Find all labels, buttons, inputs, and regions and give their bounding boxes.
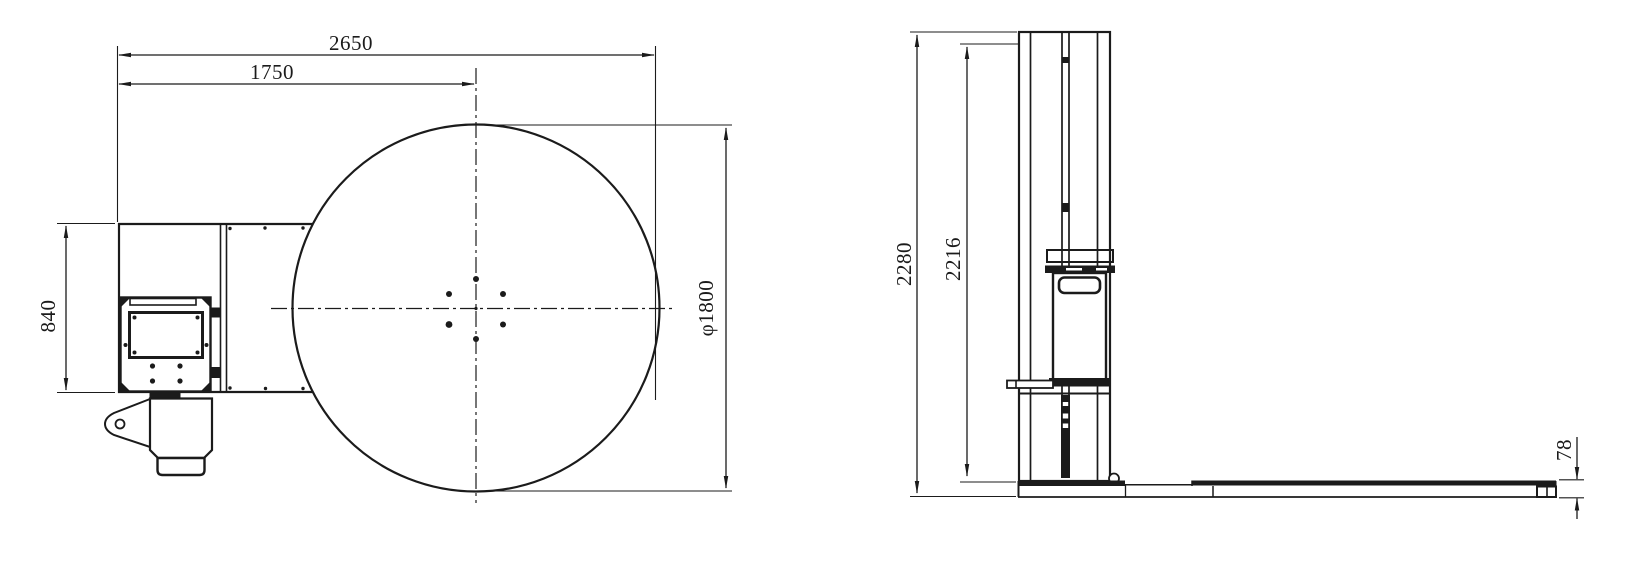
lift-screw-slots: [1063, 402, 1068, 428]
carriage-lower-band: [1049, 378, 1110, 387]
side-view-extension-lines: [910, 32, 1584, 498]
carriage-arm: [1007, 381, 1053, 389]
dim-78: 78: [1552, 437, 1577, 519]
carriage-top-slot: [130, 299, 196, 306]
motor-mount-bracket: [105, 399, 150, 447]
motor-body: [150, 399, 212, 459]
technical-drawing-canvas: 2650 1750 840 φ1800: [0, 0, 1630, 586]
dim-label-platform-thickness: 78: [1552, 439, 1576, 461]
side-view: 2280 2216 78: [892, 32, 1584, 519]
drawing-page: 2650 1750 840 φ1800: [0, 0, 1630, 586]
dim-2280: 2280: [892, 35, 917, 493]
dim-2216: 2216: [941, 47, 967, 476]
dim-label-height-to-platform: 2216: [941, 237, 965, 281]
dim-label-turntable-diameter: φ1800: [694, 280, 718, 337]
film-roll-slot: [1059, 278, 1100, 294]
mast-elevation: [1019, 32, 1110, 481]
turntable-center-lines: [271, 68, 672, 503]
carriage-inner-box: [130, 313, 203, 358]
motor-gearbox-flange: [158, 458, 205, 475]
dim-840: 840: [36, 226, 66, 390]
dim-label-center-offset: 1750: [250, 60, 294, 84]
bracket-bolt-hole: [116, 420, 125, 429]
film-carriage-plan: [121, 298, 222, 392]
drive-motor-plan: [105, 392, 212, 476]
dim-label-body-width: 840: [36, 300, 60, 333]
dim-1750: 1750: [119, 60, 474, 84]
dim-turntable-diameter: φ1800: [694, 128, 726, 488]
dim-2650: 2650: [119, 31, 654, 55]
dim-label-overall-length: 2650: [329, 31, 373, 55]
dim-label-overall-height: 2280: [892, 242, 916, 286]
carriage-side-tabs: [211, 308, 221, 379]
lift-screw-strip: [1061, 395, 1070, 478]
top-view: 2650 1750 840 φ1800: [36, 31, 732, 503]
